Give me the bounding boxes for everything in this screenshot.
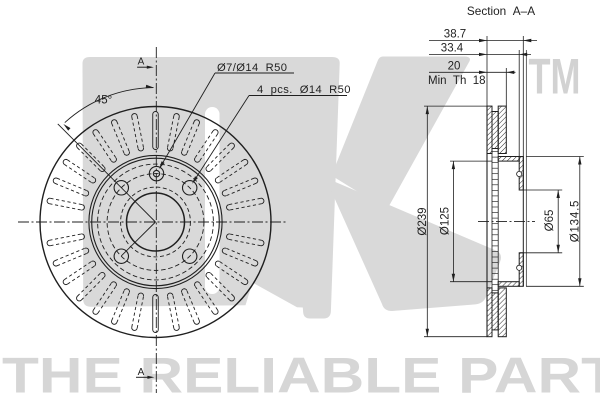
svg-text:Ø65: Ø65 bbox=[544, 210, 556, 232]
svg-text:A: A bbox=[138, 57, 145, 68]
svg-text:4 pcs. Ø14 R50: 4 pcs. Ø14 R50 bbox=[257, 84, 351, 96]
svg-text:Ø7/Ø14 R50: Ø7/Ø14 R50 bbox=[217, 62, 287, 74]
svg-text:A: A bbox=[138, 367, 145, 378]
svg-text:Ø134.5: Ø134.5 bbox=[569, 200, 581, 243]
svg-text:38.7: 38.7 bbox=[444, 29, 466, 41]
svg-text:20: 20 bbox=[448, 61, 461, 73]
svg-text:Ø239: Ø239 bbox=[417, 207, 429, 235]
svg-text:TM: TM bbox=[529, 48, 581, 105]
svg-text:45°: 45° bbox=[95, 95, 112, 107]
svg-text:Section A–A: Section A–A bbox=[467, 4, 535, 18]
svg-text:33.4: 33.4 bbox=[441, 43, 464, 55]
svg-text:THE RELIABLE PART: THE RELIABLE PART bbox=[2, 347, 600, 400]
svg-text:Ø125: Ø125 bbox=[440, 207, 452, 235]
svg-text:Min Th 18: Min Th 18 bbox=[428, 75, 486, 87]
